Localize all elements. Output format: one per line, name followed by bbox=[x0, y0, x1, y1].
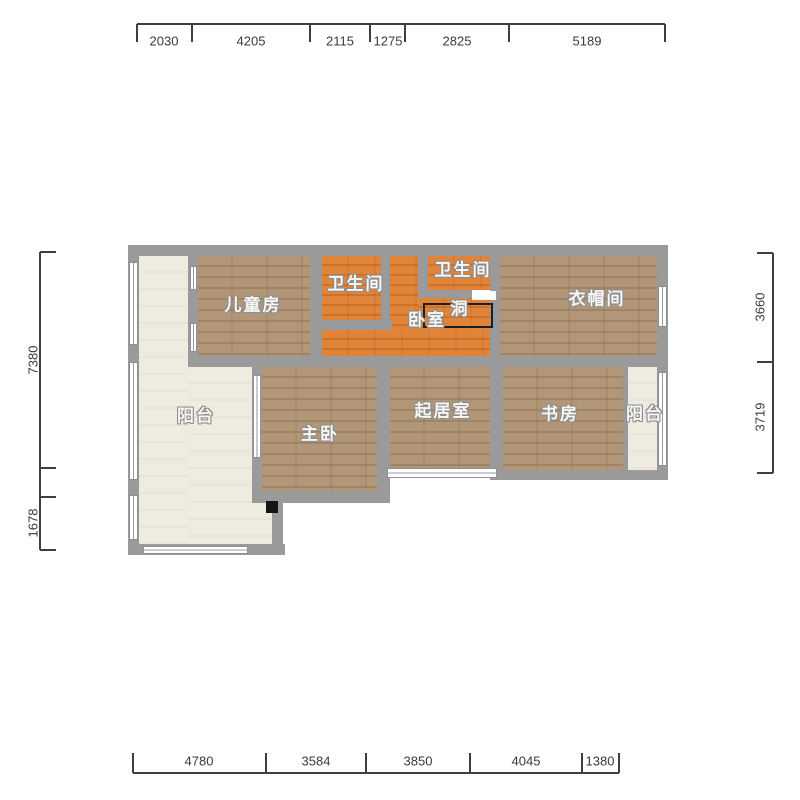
dim-label-top-4205: 4205 bbox=[237, 34, 266, 49]
dim-tick-top-1 bbox=[191, 24, 193, 42]
floor-plan-canvas: 阳台儿童房卫生间卫生间卧室洞衣帽间主卧起居室书房阳台 2030420521151… bbox=[0, 0, 800, 800]
dim-tick-right-0 bbox=[757, 252, 773, 254]
dim-tick-top-6 bbox=[664, 24, 666, 42]
dim-line-top bbox=[137, 23, 665, 25]
dim-label-left-7380: 7380 bbox=[26, 346, 41, 375]
dim-line-left bbox=[39, 252, 41, 550]
dim-tick-bottom-4 bbox=[581, 753, 583, 773]
dim-tick-left-1 bbox=[40, 467, 56, 469]
dim-label-bottom-4780: 4780 bbox=[185, 754, 214, 769]
dim-tick-right-2 bbox=[757, 472, 773, 474]
dim-tick-bottom-1 bbox=[265, 753, 267, 773]
dim-label-bottom-3584: 3584 bbox=[302, 754, 331, 769]
dim-label-top-5189: 5189 bbox=[573, 34, 602, 49]
dim-label-top-2825: 2825 bbox=[443, 34, 472, 49]
dim-tick-top-3 bbox=[369, 24, 371, 42]
dim-tick-bottom-2 bbox=[365, 753, 367, 773]
dim-label-right-3660: 3660 bbox=[753, 293, 768, 322]
dim-label-bottom-4045: 4045 bbox=[512, 754, 541, 769]
dim-tick-top-4 bbox=[404, 24, 406, 42]
dim-tick-bottom-0 bbox=[132, 753, 134, 773]
dim-label-top-2030: 2030 bbox=[150, 34, 179, 49]
dim-label-bottom-1380: 1380 bbox=[586, 754, 615, 769]
dim-tick-left-3 bbox=[40, 549, 56, 551]
dim-tick-left-2 bbox=[40, 496, 56, 498]
dim-tick-left-0 bbox=[40, 251, 56, 253]
dim-line-bottom bbox=[133, 772, 619, 774]
dim-tick-top-0 bbox=[136, 24, 138, 42]
dim-tick-bottom-3 bbox=[469, 753, 471, 773]
dim-tick-right-1 bbox=[757, 361, 773, 363]
dim-tick-bottom-5 bbox=[618, 753, 620, 773]
dim-label-right-3719: 3719 bbox=[753, 403, 768, 432]
dim-line-right bbox=[772, 253, 774, 473]
dim-label-bottom-3850: 3850 bbox=[404, 754, 433, 769]
dimension-lines-layer: 2030420521151275282551894780358438504045… bbox=[0, 0, 800, 800]
dim-label-left-1678: 1678 bbox=[26, 509, 41, 538]
dim-label-top-1275: 1275 bbox=[374, 34, 403, 49]
dim-tick-top-5 bbox=[508, 24, 510, 42]
dim-tick-top-2 bbox=[309, 24, 311, 42]
dim-label-top-2115: 2115 bbox=[326, 34, 354, 49]
